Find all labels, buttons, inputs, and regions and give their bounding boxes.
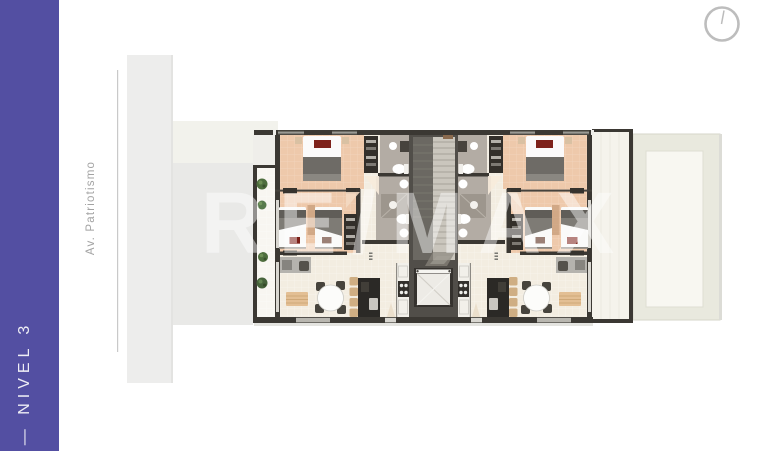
svg-text:RE/MAX: RE/MAX <box>201 175 629 272</box>
svg-text:— NIVEL 3: — NIVEL 3 <box>16 321 33 445</box>
svg-text:Av. Patriotismo: Av. Patriotismo <box>85 161 97 255</box>
